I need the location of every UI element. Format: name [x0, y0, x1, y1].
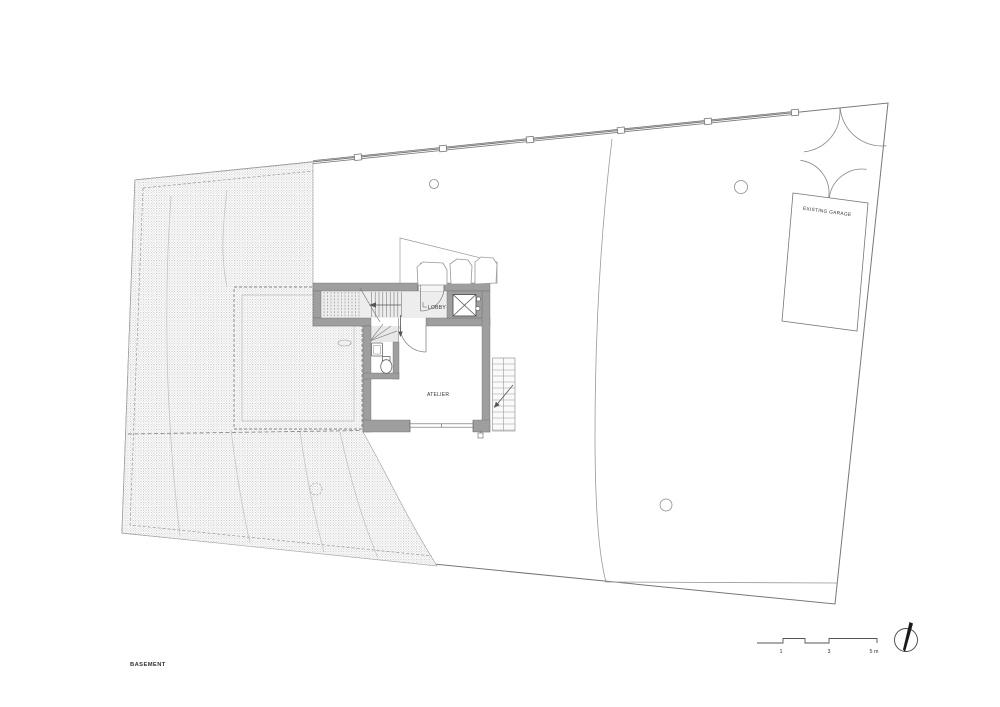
north-arrow-icon [895, 622, 918, 652]
scale-tick-1: 1 [780, 649, 783, 655]
level-marker [338, 340, 351, 346]
floor-plan-drawing: EXISTING GARAGE [0, 0, 1000, 707]
scale-tick-3: 3 [828, 649, 831, 655]
elevator-x-icon [453, 295, 476, 317]
atelier-label: ATELIER [427, 392, 449, 398]
floor-plan-sheet: EXISTING GARAGE [0, 0, 1000, 707]
toilet-icon [381, 357, 392, 374]
floor-title: BASEMENT [130, 662, 166, 668]
atelier-window [410, 420, 473, 432]
exterior-stair [493, 358, 516, 431]
scale-tick-5m: 5 m [870, 649, 879, 655]
lobby-label: LOBBY [428, 305, 446, 311]
scale-bar: 1 3 5 m [757, 639, 879, 656]
